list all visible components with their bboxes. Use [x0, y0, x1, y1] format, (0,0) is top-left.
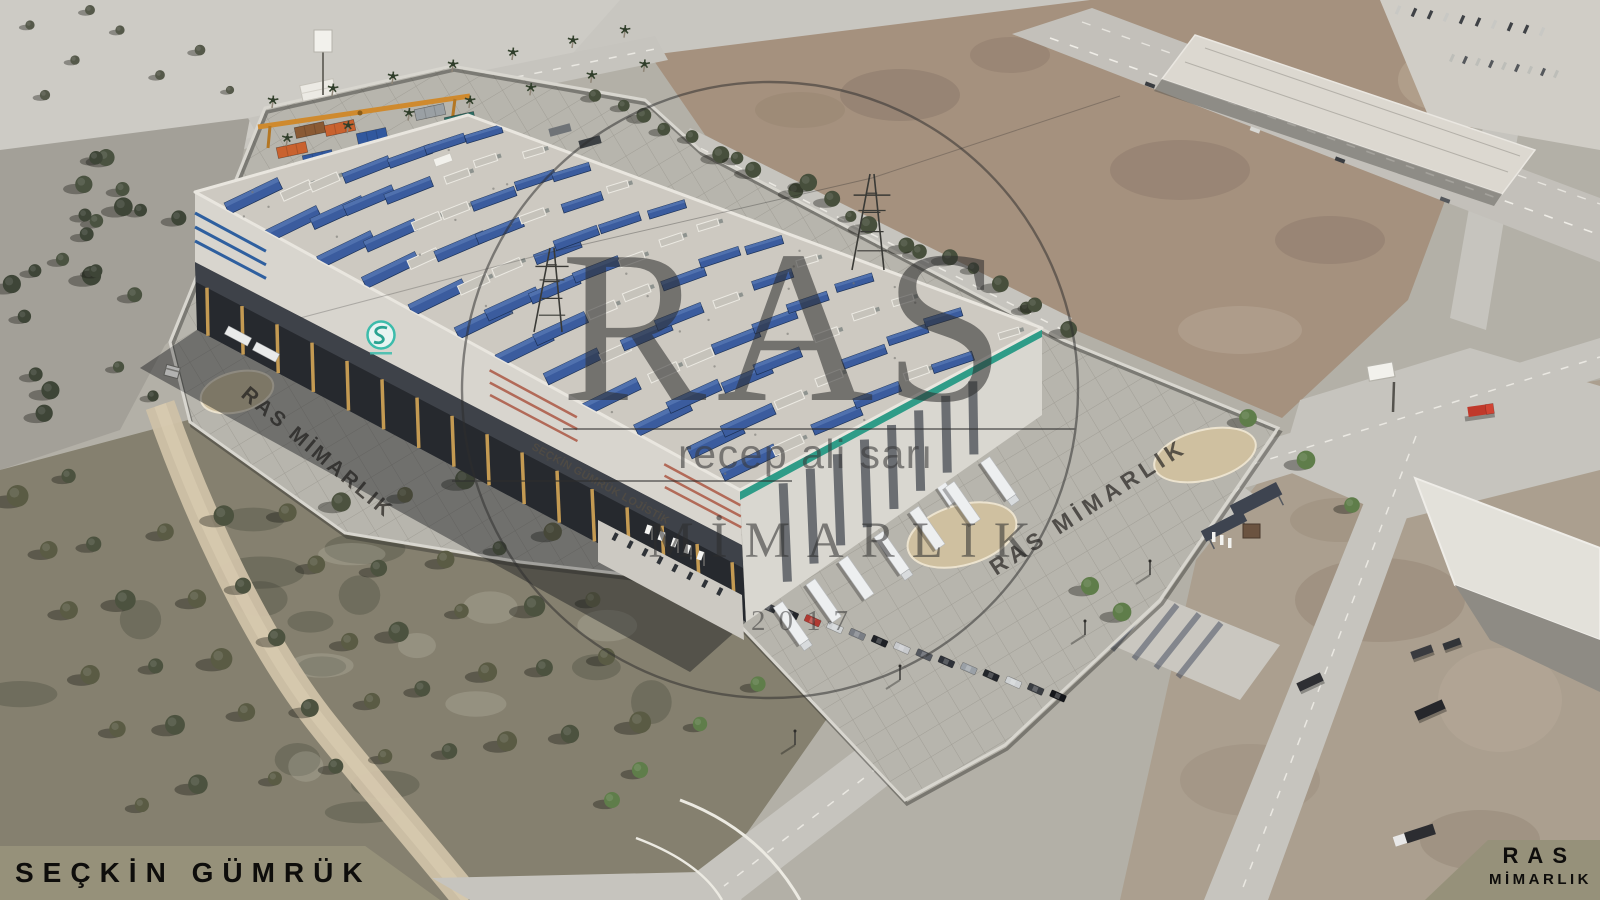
- watermark-brand: RAS: [561, 207, 1015, 448]
- watermark-year: 2017: [751, 605, 861, 637]
- project-title-text: SEÇKİN GÜMRÜK: [0, 846, 440, 900]
- watermark-discipline: MİMARLIK: [648, 513, 1048, 569]
- scene-svg: RAS MİMARLIK RAS MİMARLIK SEÇKİN GÜMRÜK …: [0, 0, 1600, 900]
- project-title-banner: SEÇKİN GÜMRÜK: [0, 846, 440, 900]
- watermark-architect-name: recep ali sarı: [678, 431, 934, 477]
- aerial-render: RAS MİMARLIK RAS MİMARLIK SEÇKİN GÜMRÜK …: [0, 0, 1600, 900]
